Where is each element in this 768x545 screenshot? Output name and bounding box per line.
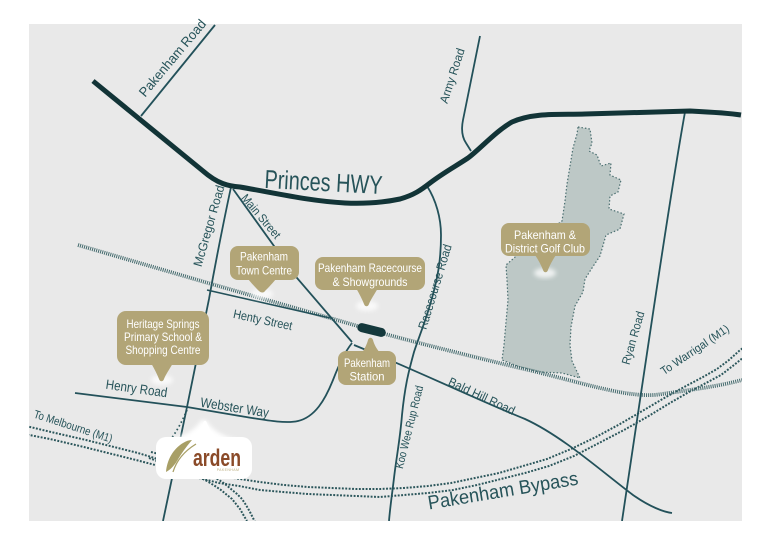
svg-text:Station: Station [350,370,385,384]
svg-text:& Showgrounds: & Showgrounds [333,275,408,289]
svg-text:Pakenham Racecourse: Pakenham Racecourse [318,261,422,275]
svg-text:Town Centre: Town Centre [236,264,292,278]
svg-text:Pakenham: Pakenham [240,250,288,264]
svg-text:Pakenham: Pakenham [344,356,390,370]
svg-text:Heritage Springs: Heritage Springs [127,317,200,331]
svg-text:Primary School &: Primary School & [124,330,202,344]
svg-text:Princes HWY: Princes HWY [264,164,383,200]
svg-text:PAKENHAM: PAKENHAM [217,468,240,472]
svg-text:Pakenham &: Pakenham & [514,228,576,242]
svg-text:Shopping Centre: Shopping Centre [126,343,201,357]
svg-text:District Golf Club: District Golf Club [505,242,585,256]
